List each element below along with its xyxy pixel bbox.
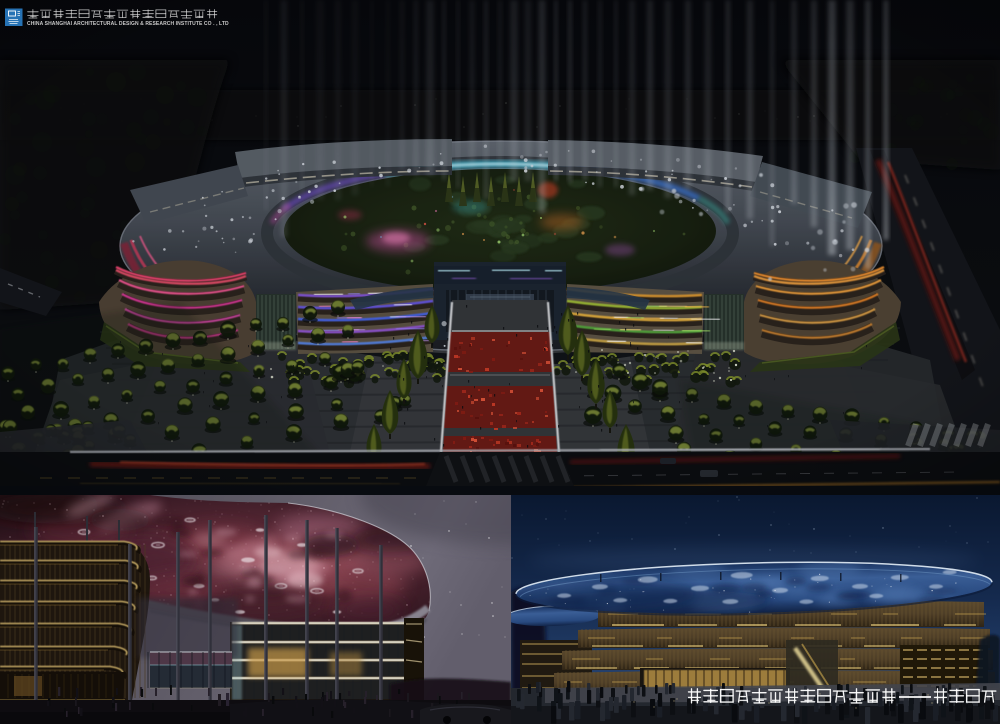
svg-text:CHINA SHANGHAI ARCHITECTURAL D: CHINA SHANGHAI ARCHITECTURAL DESIGN & RE…: [27, 21, 229, 27]
